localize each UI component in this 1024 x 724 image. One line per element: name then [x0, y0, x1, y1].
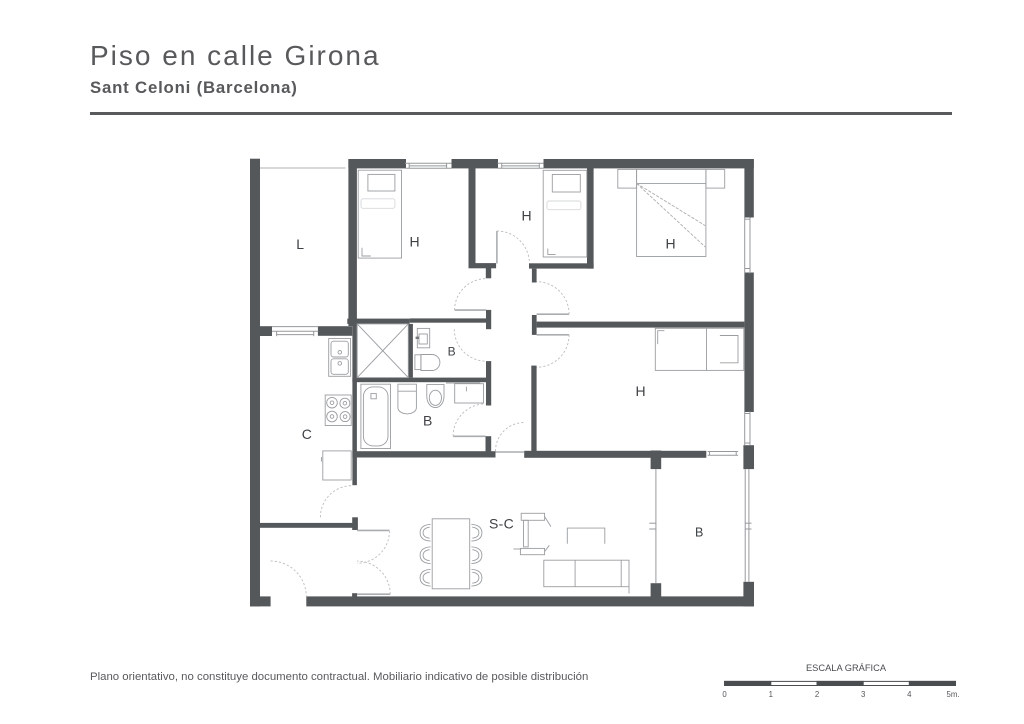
svg-text:ESCALA GRÁFICA: ESCALA GRÁFICA [806, 663, 887, 673]
svg-text:H: H [410, 233, 420, 249]
svg-text:H: H [666, 236, 676, 252]
svg-text:1: 1 [769, 690, 773, 699]
svg-text:B: B [448, 345, 456, 359]
svg-text:H: H [636, 383, 646, 399]
svg-text:5m.: 5m. [947, 690, 960, 699]
svg-text:S-C: S-C [489, 516, 514, 532]
svg-text:B: B [695, 526, 703, 540]
svg-text:3: 3 [861, 690, 865, 699]
svg-text:0: 0 [722, 690, 727, 699]
svg-text:B: B [423, 413, 432, 429]
svg-text:H: H [522, 208, 532, 224]
svg-text:L: L [296, 236, 304, 252]
svg-text:C: C [302, 426, 312, 442]
svg-text:4: 4 [907, 690, 912, 699]
svg-text:2: 2 [815, 690, 819, 699]
